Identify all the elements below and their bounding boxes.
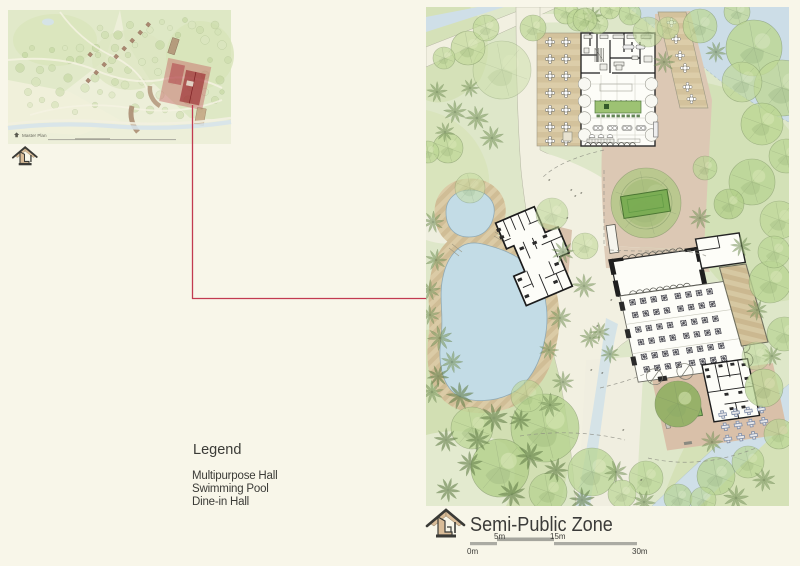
svg-text:5m: 5m (494, 532, 505, 541)
svg-text:15m: 15m (550, 532, 566, 541)
svg-text:0m: 0m (467, 547, 478, 556)
svg-text:30m: 30m (632, 547, 648, 556)
svg-text:Master Plan: Master Plan (22, 133, 47, 138)
